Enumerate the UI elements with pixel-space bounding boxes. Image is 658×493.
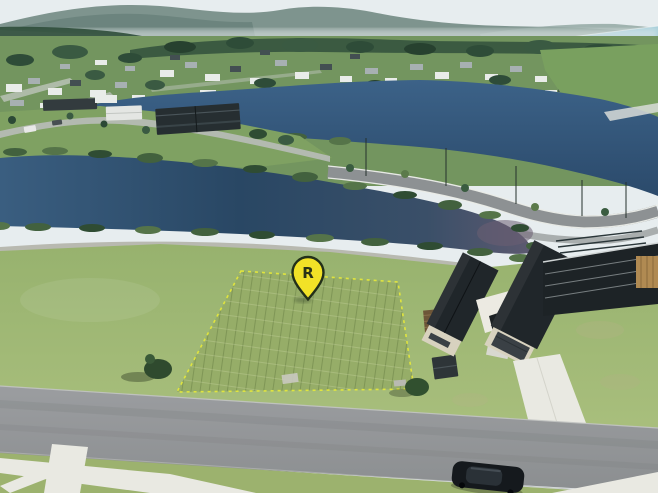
garden-shed xyxy=(432,354,459,379)
white-structure xyxy=(95,95,117,103)
aerial-scene: R xyxy=(0,0,658,493)
lake-shallow-patch xyxy=(477,220,533,246)
pin-label: R xyxy=(302,264,314,282)
aerial-photo: R xyxy=(0,0,658,493)
long-shed xyxy=(43,98,97,111)
white-shed xyxy=(106,105,142,120)
